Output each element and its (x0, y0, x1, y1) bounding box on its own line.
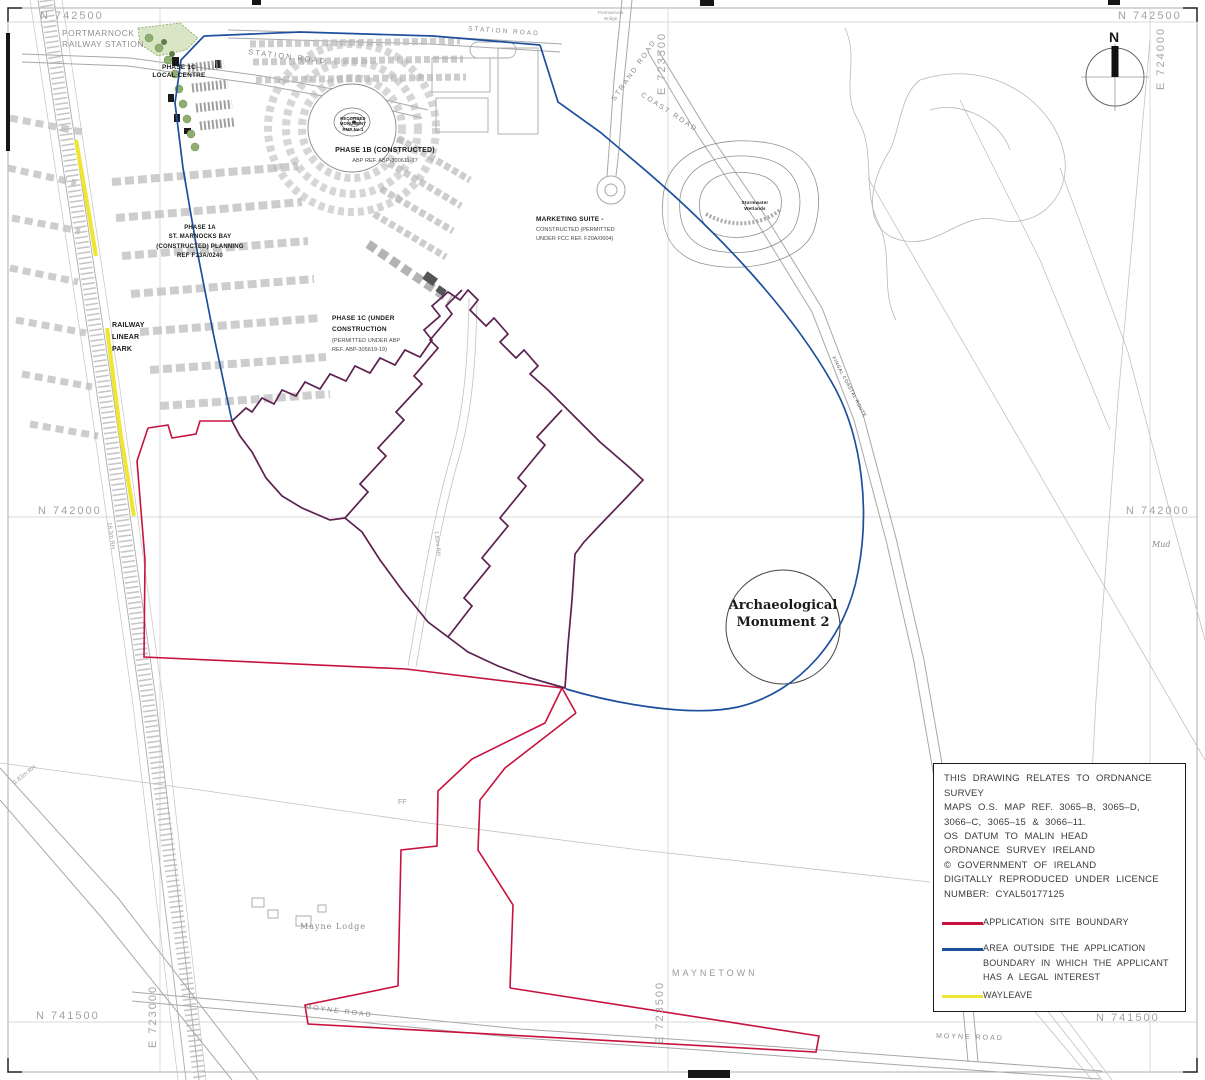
legend-label-wayleave: WAYLEAVE (983, 988, 1032, 1003)
notes-legend-box: THIS DRAWING RELATES TO ORDNANCE SURVEY … (933, 763, 1186, 1012)
licence-note: ORDNANCE SURVEY IRELAND © GOVERNMENT OF … (944, 844, 1159, 902)
road-label-station-road-1: STATION ROAD (248, 47, 328, 66)
label-phase-1c-ref: (PERMITTED UNDER ABP REF. ABP-305619-19) (332, 337, 400, 355)
legend-swatch-legal-interest-area (942, 948, 983, 951)
grid-label-n742500-right: N 742500 (1118, 9, 1182, 23)
label-phase-1b-title: PHASE 1B (CONSTRUCTED) (310, 146, 460, 155)
grid-label-e723500-bottom: E 723500 (653, 981, 667, 1044)
road-label-moyne-road-1: MOYNE ROAD (305, 1003, 373, 1020)
grid-label-n742500-left: N 742500 (40, 9, 104, 23)
label-phase-1c-title: PHASE 1C (UNDER CONSTRUCTION (332, 314, 395, 335)
grid-label-n742000-left: N 742000 (38, 504, 102, 518)
label-marketing-suite-title: MARKETING SUITE - (536, 216, 604, 224)
planning-drawing: { "colors": { "boundary_red": "#c8123e",… (0, 0, 1205, 1080)
road-label-coast-road: COAST ROAD (639, 91, 699, 135)
road-label-moyne-road-2: MOYNE ROAD (936, 1032, 1004, 1043)
label-mayne-lodge: Mayne Lodge (300, 922, 366, 932)
legend-label-application-site-boundary: APPLICATION SITE BOUNDARY (983, 915, 1129, 930)
grid-label-n742000-right: N 742000 (1126, 504, 1190, 518)
label-portmarnock-railway-station: PORTMARNOCK RAILWAY STATION (62, 28, 144, 50)
label-stormwater-wetlands: Stormwater Wetlands (733, 200, 777, 212)
label-railway-linear-park: RAILWAY LINEAR PARK (112, 320, 145, 356)
label-local-centre: PHASE 1C LOCAL CENTRE (148, 64, 210, 81)
grid-label-n741500-right: N 741500 (1096, 1011, 1160, 1025)
label-hedge-2: 18.3m RH (104, 522, 115, 550)
road-label-fingal-coastal-route: FINGAL COASTAL ROUTE (830, 356, 867, 419)
label-recorded-monument: RECORDED MONUMENT RMP No.1 (330, 116, 376, 132)
road-label-station-road-2: STATION ROAD (468, 26, 540, 39)
grid-label-e724000-top: E 724000 (1154, 27, 1168, 90)
label-archaeological-monument-2: Archaeological Monument 2 (723, 598, 843, 632)
label-portmarnock-bridge: Portmarnock Bridge (598, 10, 624, 22)
label-hedge-1: 1.83m RH (12, 765, 38, 788)
road-label-strand-road: STRAND ROAD (610, 38, 659, 103)
label-maynetown: MAYNETOWN (672, 968, 758, 980)
label-phase-1a: PHASE 1A ST. MARNOCKS BAY (CONSTRUCTED) … (142, 224, 258, 261)
grid-label-n741500-left: N 741500 (36, 1009, 100, 1023)
legend-swatch-application-site-boundary (942, 922, 983, 925)
grid-label-e723000: E 723000 (146, 985, 160, 1048)
legend-label-legal-interest-area: AREA OUTSIDE THE APPLICATION BOUNDARY IN… (983, 941, 1169, 985)
compass-north-label: N (1109, 28, 1119, 46)
label-ff: FF (398, 798, 407, 807)
label-phase-1b-ref: ABP REF. ABP-300611-17 (310, 158, 460, 165)
label-marketing-suite-ref: CONSTRUCTED (PERMITTED UNDER FCC REF. F2… (536, 226, 615, 244)
survey-note: THIS DRAWING RELATES TO ORDNANCE SURVEY … (944, 772, 1185, 845)
legend-swatch-wayleave (942, 995, 983, 998)
label-mud: Mud (1152, 540, 1170, 550)
label-hedge-3: 1.83m RH (432, 531, 442, 556)
